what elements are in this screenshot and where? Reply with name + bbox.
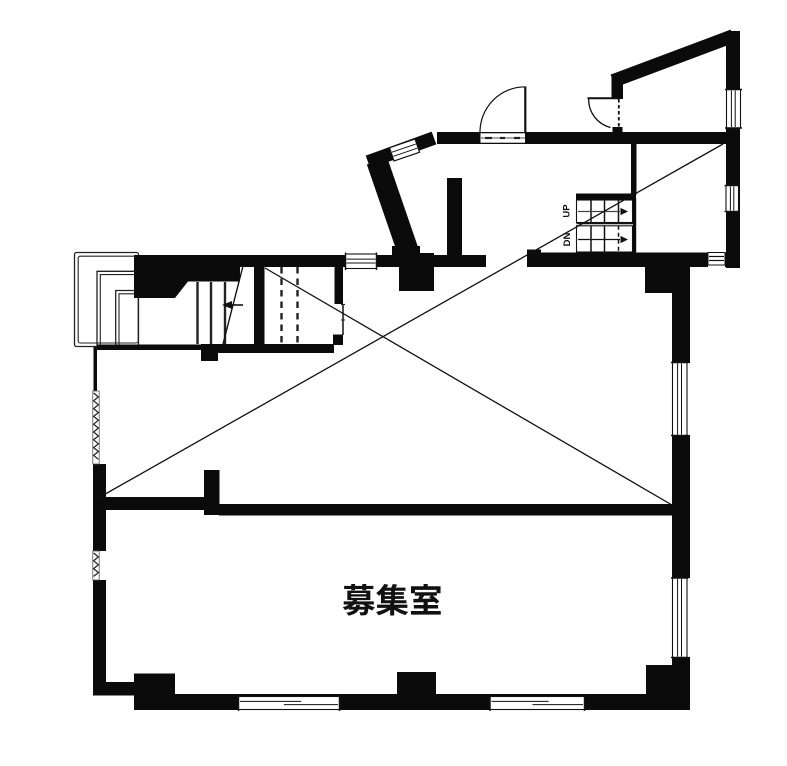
svg-text:UP: UP: [562, 204, 573, 218]
